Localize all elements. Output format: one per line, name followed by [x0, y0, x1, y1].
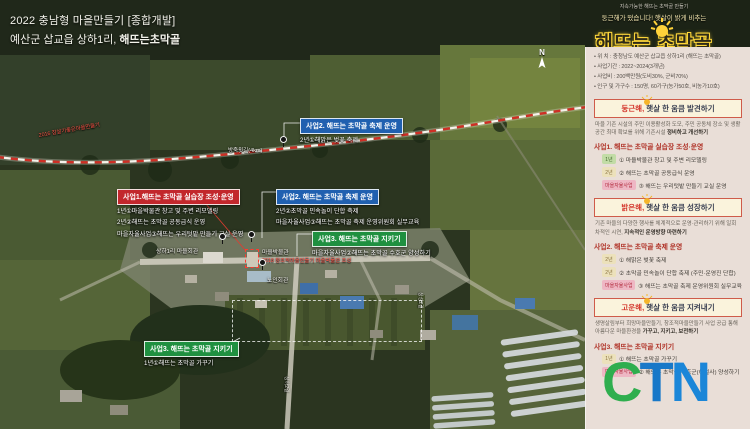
callout-festival-center: 사업2. 해뜨는 초막골 축제 운영 2년②초막골 민속놀이 단합 축제 마을자… [276, 186, 419, 228]
mini-sun-icon [641, 194, 653, 204]
map-pin-senior-center [258, 259, 267, 271]
callout-protect-bottom: 사업3. 해뜨는 초막골 지키기 1년①해뜨는 초막골 가꾸기 [144, 338, 239, 368]
ctn-letter-t: T [639, 350, 670, 413]
project2-item2: 2년② 초막골 민속놀이 단합 축제 (주민·운영진 단합) [602, 267, 742, 277]
sun-icon [650, 17, 674, 37]
info-period: 사업기간 : 2022~2024(3개년) [594, 63, 742, 73]
callout-practice-line2: 2년②해뜨는 초막골 공동급식 운영 [117, 219, 243, 227]
map-pin-museum [247, 231, 256, 243]
page-title: 2022 충남형 마을만들기 [종합개발] 예산군 삽교읍 상하1리, 해뜨는초… [10, 12, 180, 47]
callout-festival-road-line: 2년①해맑은 벚꽃 축제 [300, 137, 403, 145]
title-village-name: 해뜨는초막골 [119, 34, 180, 46]
program-tag: 마을자율사업 [602, 180, 636, 190]
museum-label: 마을박물관 [262, 247, 289, 256]
mini-sun-icon [641, 294, 653, 304]
callout-practice-line1: 1년①마을박물관 창고 및 주변 리모델링 [117, 208, 243, 216]
small-road-label-2: 상하2길 [283, 376, 290, 393]
year-tag: 1년 [602, 154, 616, 164]
mini-sun-icon [641, 95, 653, 105]
program-tag: 마을자율사업 [602, 280, 635, 290]
project2-subtitle: 사업2. 해뜨는 초막골 축제 운영 [594, 241, 742, 251]
callout-protect-center-title: 사업3. 해뜨는 초막골 지키기 [312, 231, 407, 247]
section-protect-desc: 생명살림부터 희망마을만들기, 창조적마을만들기 사업 공급 통해 아름다운 마… [595, 320, 741, 337]
callout-festival-center-line2: 마을자율사업③해뜨는 초막골 축제 운영위원회 실무교육 [276, 219, 419, 227]
year-tag: 2년 [602, 267, 616, 277]
callout-protect-bottom-line: 1년①해뜨는 초막골 가꾸기 [144, 360, 239, 368]
callout-festival-road: 사업2. 해뜨는 초막골 축제 운영 2년①해맑은 벚꽃 축제 [300, 115, 403, 145]
map-pin-village-hall [218, 233, 227, 245]
ctn-letter-n: N [671, 350, 708, 413]
section-grow-title: 햇살 한 움큼 성장하기 [644, 203, 714, 212]
project1-item1: 1년① 마을박물관 창고 및 주변 리모델링 [602, 154, 742, 164]
callout-protect-center: 사업3. 해뜨는 초막골 지키기 마을자율사업②해뜨는 초막골 수호군 양성하기 [312, 228, 431, 258]
museum-highlight-rect [245, 249, 259, 268]
project1-subtitle: 사업1. 해뜨는 초막골 실습장 조성·운영 [594, 141, 742, 151]
ctn-watermark: CTN [602, 354, 708, 410]
info-budget: 사업비 : 200백만원(도비30%, 군비70%) [594, 73, 742, 83]
project1-item2: 2년② 해뜨는 초막골 공동급식 운영 [602, 167, 742, 177]
section-protect-title: 햇살 한 움큼 지켜내기 [644, 303, 714, 312]
section-discover-title: 햇살 한 움큼 발견하기 [644, 104, 714, 113]
section-discover: 둥근해, 햇살 한 움큼 발견하기 마을 기존 시설의 주민 이용활성화 도모,… [594, 99, 742, 191]
callout-festival-center-title: 사업2. 해뜨는 초막골 축제 운영 [276, 189, 379, 205]
section-discover-keyword: 둥근해, [621, 104, 644, 113]
compass-n: N [536, 49, 548, 57]
callout-festival-center-line1: 2년②초막골 민속놀이 단합 축제 [276, 208, 419, 216]
section-discover-header: 둥근해, 햇살 한 움큼 발견하기 [594, 99, 742, 118]
project2-item3: 마을자율사업③ 해뜨는 초막골 축제 운영위원회 실무교육 [602, 280, 742, 290]
section-protect-header: 고운해, 햇살 한 움큼 지켜내기 [594, 298, 742, 317]
map-pin-route [279, 136, 288, 148]
compass-arrow-icon [538, 57, 546, 69]
ctn-letter-c: C [602, 350, 639, 413]
callout-protect-bottom-title: 사업3. 해뜨는 초막골 지키기 [144, 341, 239, 357]
section-grow-desc: 기존 마을의 다양한 행사를 체계적으로 운영·관리하기 위해 일회차적인 시연… [595, 220, 741, 237]
project1-item3: 마을자율사업③ 해뜨는 우리텃밭 만들기 교실 운영 [602, 180, 742, 190]
senior-center-label: 노인회관 [267, 275, 288, 284]
callout-practice-site-title: 사업1.해뜨는 초막골 실습장 조성·운영 [117, 189, 240, 205]
project-info-list: 위 치 : 충청남도 예산군 삽교읍 상하1리 (해뜨는 초막골) 사업기간 :… [594, 53, 742, 93]
title-location: 예산군 삽교읍 상하1리, [10, 34, 119, 46]
compass: N [536, 49, 548, 71]
year-tag: 2년 [602, 167, 616, 177]
callout-festival-road-title: 사업2. 해뜨는 초막골 축제 운영 [300, 118, 403, 134]
callout-practice-site: 사업1.해뜨는 초막골 실습장 조성·운영 1년①마을박물관 창고 및 주변 리… [117, 186, 243, 239]
logo-tagline-small: 지속가능한 해뜨는 초막골 만들기 [562, 3, 746, 10]
poster: 2022 충남형 마을만들기 [종합개발] 예산군 삽교읍 상하1리, 해뜨는초… [0, 0, 750, 429]
section-grow-header: 밝은해, 햇살 한 움큼 성장하기 [594, 198, 742, 217]
title-line2: 예산군 삽교읍 상하1리, 해뜨는초막골 [10, 31, 180, 47]
year-tag: 2년 [602, 254, 616, 264]
road-name-label: 방죽윗길(4km) [228, 146, 262, 154]
info-population: 인구 및 가구수 : 150명, 60가구(농가50호, 비농가10호) [594, 83, 742, 93]
section-grow-keyword: 밝은해, [621, 203, 644, 212]
orchard-highlight-rect [232, 300, 422, 342]
info-location: 위 치 : 충청남도 예산군 삽교읍 상하1리 (해뜨는 초막골) [594, 53, 742, 63]
title-line1: 2022 충남형 마을만들기 [종합개발] [10, 12, 180, 28]
village-hall-label: 상하1리 마을회관 [156, 246, 198, 255]
section-grow: 밝은해, 햇살 한 움큼 성장하기 기존 마을의 다양한 행사를 체계적으로 운… [594, 198, 742, 290]
museum-note-label: 2018 창조적마을만들기 마을박물관 조성 [262, 256, 351, 264]
section-discover-desc: 마을 기존 시설의 주민 이용활성화 도모, 주민 공동체 장소 및 생활공간 … [595, 121, 741, 138]
project2-item1: 2년① 해맑은 벚꽃 축제 [602, 254, 742, 264]
section-protect-keyword: 고운해, [621, 303, 644, 312]
